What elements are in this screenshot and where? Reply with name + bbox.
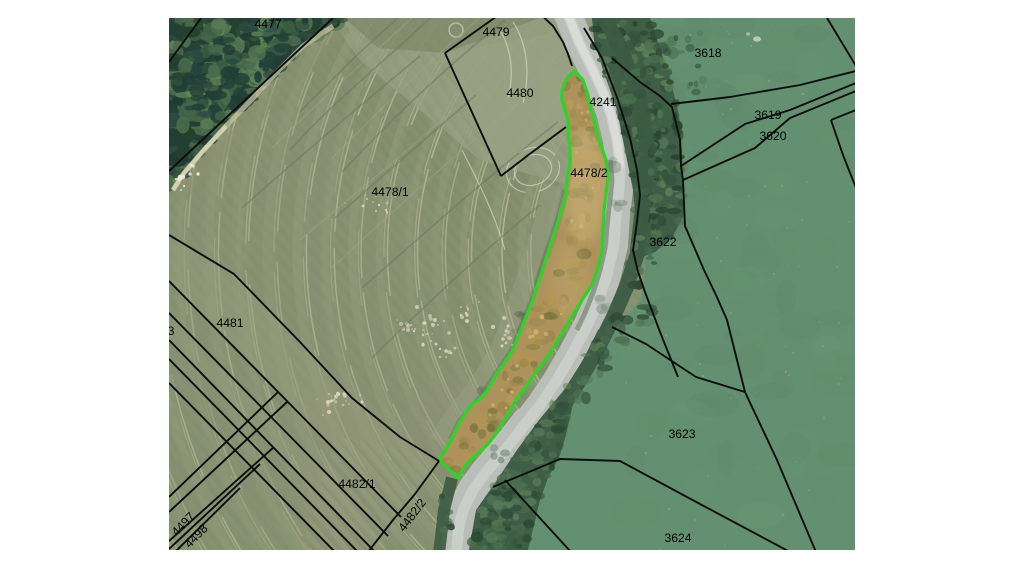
svg-text:4479: 4479 [482, 25, 509, 39]
svg-text:3619: 3619 [754, 108, 781, 122]
svg-text:4480: 4480 [506, 86, 533, 100]
svg-text:4477: 4477 [254, 17, 281, 31]
svg-text:3623: 3623 [668, 427, 695, 441]
svg-text:3618: 3618 [694, 46, 721, 60]
svg-text:3624: 3624 [664, 531, 691, 545]
svg-text:4241: 4241 [589, 95, 616, 109]
svg-text:4481: 4481 [216, 316, 243, 330]
svg-text:3622: 3622 [649, 235, 676, 249]
svg-text:4478/2: 4478/2 [570, 166, 607, 180]
svg-text:4478/1: 4478/1 [371, 185, 408, 199]
svg-text:3620: 3620 [759, 129, 786, 143]
svg-text:4482/1: 4482/1 [338, 477, 375, 491]
